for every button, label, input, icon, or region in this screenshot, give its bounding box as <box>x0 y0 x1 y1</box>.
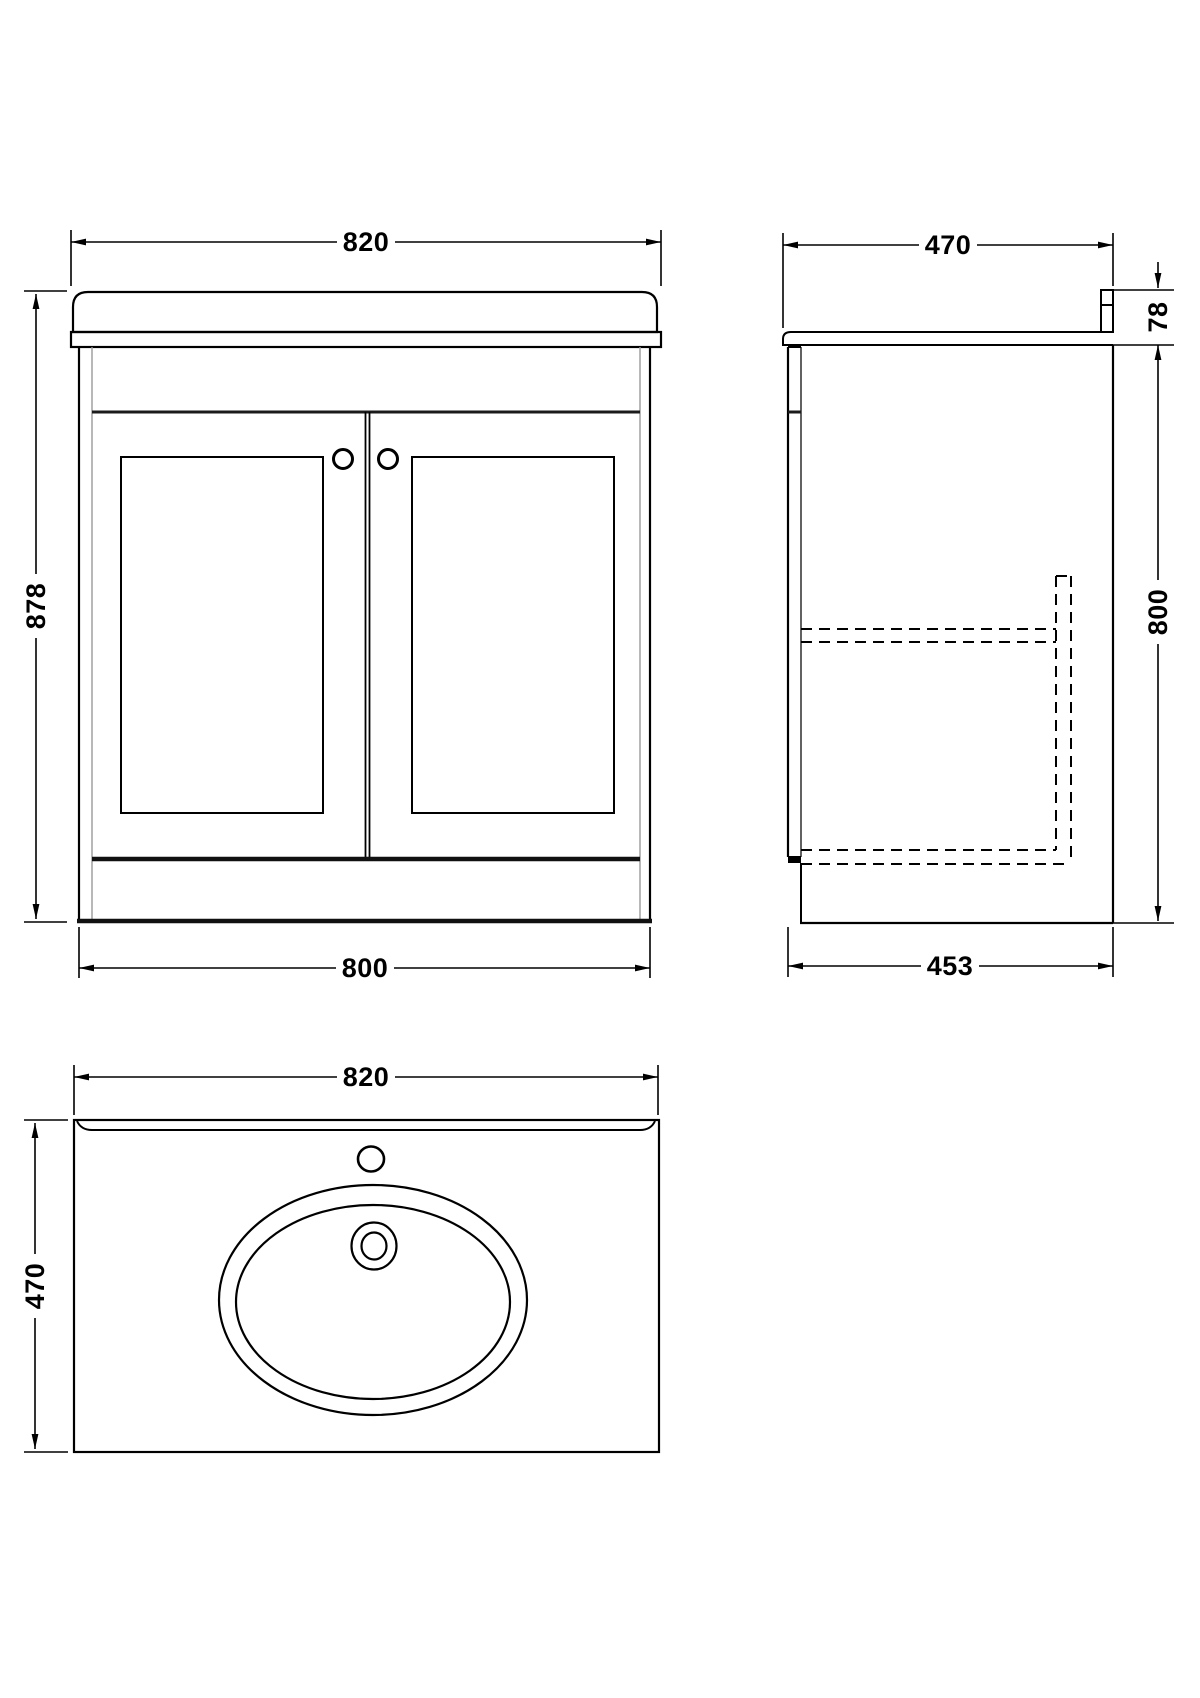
dim-label-470: 470 <box>925 230 972 260</box>
worktop-side-profile <box>783 332 1113 345</box>
plan-dim-depth-left: 470 <box>20 1120 68 1452</box>
dim-label-800: 800 <box>342 953 389 983</box>
left-door-panel <box>121 457 323 813</box>
left-door-knob <box>334 450 353 469</box>
side-dim-depth-top: 470 <box>783 230 1113 328</box>
front-dim-height-left: 878 <box>21 291 67 922</box>
dim-label-878: 878 <box>21 583 51 630</box>
rotated-label: 78 <box>1143 291 1173 343</box>
rotated-label: 470 <box>20 1254 50 1318</box>
side-dim-worktop-height: 78 <box>1113 262 1174 345</box>
front-view: 820 878 <box>21 227 661 983</box>
side-dim-depth-bottom: 453 <box>788 927 1113 981</box>
vanity-unit-drawing: 820 878 <box>0 0 1200 1698</box>
dim-label-453: 453 <box>927 951 974 981</box>
plan-view: 820 470 <box>20 1062 659 1452</box>
basin-outer-rim <box>219 1185 527 1415</box>
front-dim-width-top: 820 <box>71 227 661 286</box>
overflow-outer <box>352 1223 397 1270</box>
side-dim-cabinet-height: 800 <box>1113 345 1174 923</box>
worktop-front <box>73 292 657 332</box>
upstand <box>1101 290 1113 332</box>
dim-label-820: 820 <box>343 227 390 257</box>
dim-label-800-side: 800 <box>1143 589 1173 636</box>
rotated-label: 800 <box>1143 580 1173 644</box>
right-door-panel <box>412 457 614 813</box>
right-door-knob <box>379 450 398 469</box>
worktop-lip <box>71 332 661 347</box>
hidden-shelf-lines <box>801 576 1071 864</box>
overflow-inner <box>362 1233 387 1260</box>
dim-label-470-plan: 470 <box>20 1263 50 1310</box>
dim-label-78: 78 <box>1143 301 1173 332</box>
rotated-label: 878 <box>21 574 51 638</box>
front-dim-width-bottom: 800 <box>79 927 650 983</box>
door-bottom-notch <box>788 856 801 863</box>
plan-dim-width-top: 820 <box>74 1062 658 1115</box>
technical-drawing-page: 820 878 <box>0 0 1200 1698</box>
dim-label-820-plan: 820 <box>343 1062 390 1092</box>
basin-inner-rim <box>236 1205 510 1399</box>
worktop-back-edge-strip <box>77 1121 655 1130</box>
side-view: 470 78 <box>783 230 1174 981</box>
tap-hole <box>358 1147 384 1172</box>
